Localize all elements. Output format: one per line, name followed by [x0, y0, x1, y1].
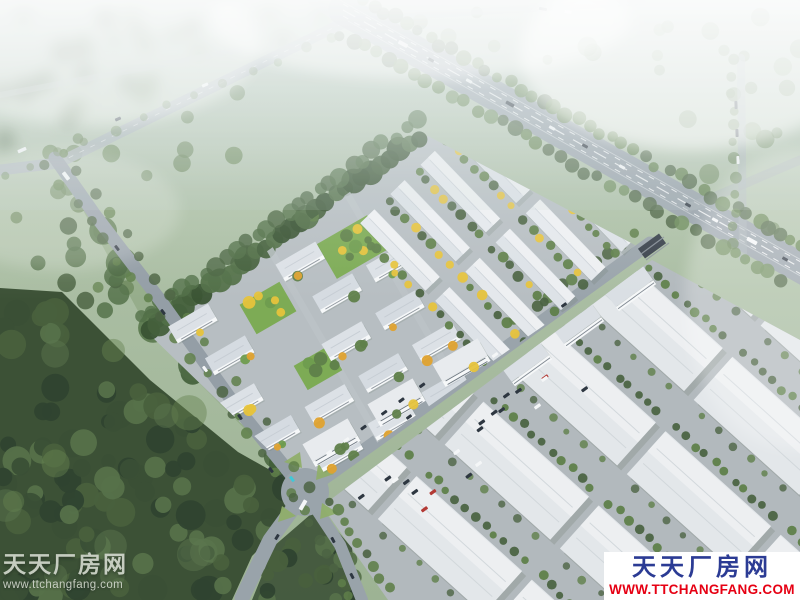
- scene-canvas: [0, 0, 800, 600]
- brand-badge-title: 天天厂房网: [632, 556, 772, 580]
- brand-badge: 天天厂房网 WWW.TTCHANGFANG.COM: [604, 552, 800, 600]
- aerial-photo: 天天厂房网 www.ttchangfang.com 天天厂房网 WWW.TTCH…: [0, 0, 800, 600]
- brand-badge-url: WWW.TTCHANGFANG.COM: [609, 582, 795, 597]
